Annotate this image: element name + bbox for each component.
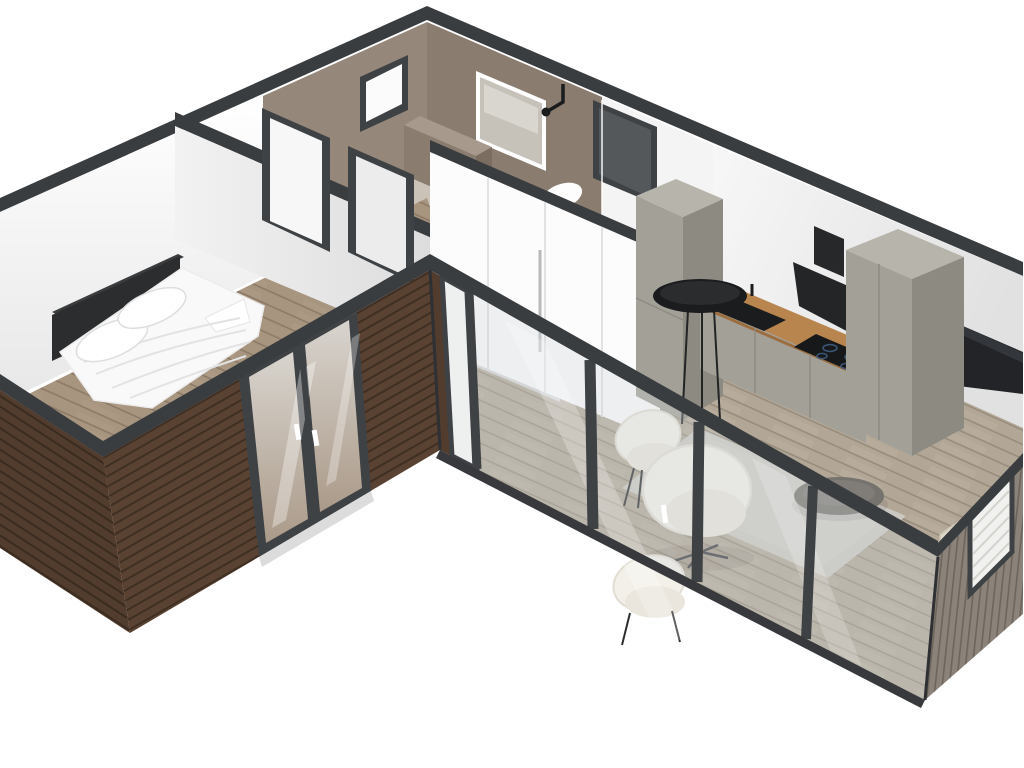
shower-head <box>542 108 551 117</box>
floorplan-render <box>0 0 1024 768</box>
floorplan-svg <box>0 0 1024 768</box>
table-top-sheen <box>660 281 740 305</box>
tall-cabinet-right-side <box>912 257 964 456</box>
